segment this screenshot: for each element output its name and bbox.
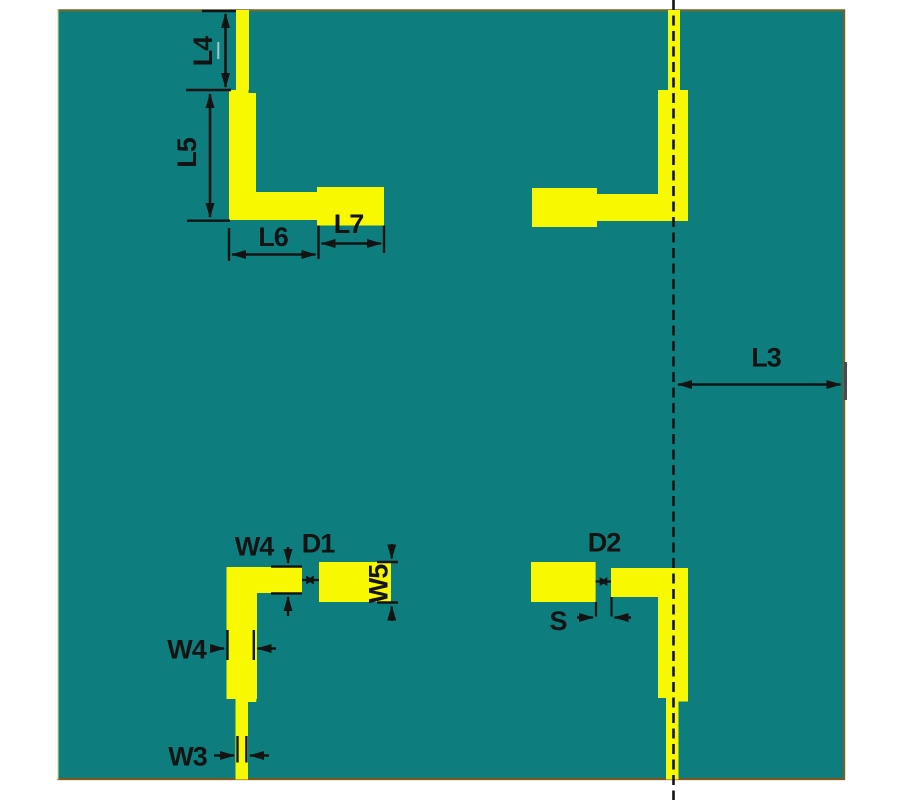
svg-text:L7: L7 [334,209,364,239]
svg-text:L6: L6 [258,222,288,252]
svg-text:D2: D2 [588,528,621,558]
svg-text:D1: D1 [302,529,335,559]
svg-text:S: S [549,606,566,636]
svg-text:L5: L5 [172,137,202,167]
svg-text:W4: W4 [167,635,206,665]
svg-text:W4: W4 [235,532,274,562]
svg-text:W3: W3 [168,742,207,772]
svg-text:L4: L4 [188,36,218,66]
svg-text:W5: W5 [364,564,394,603]
svg-text:L3: L3 [751,343,781,373]
